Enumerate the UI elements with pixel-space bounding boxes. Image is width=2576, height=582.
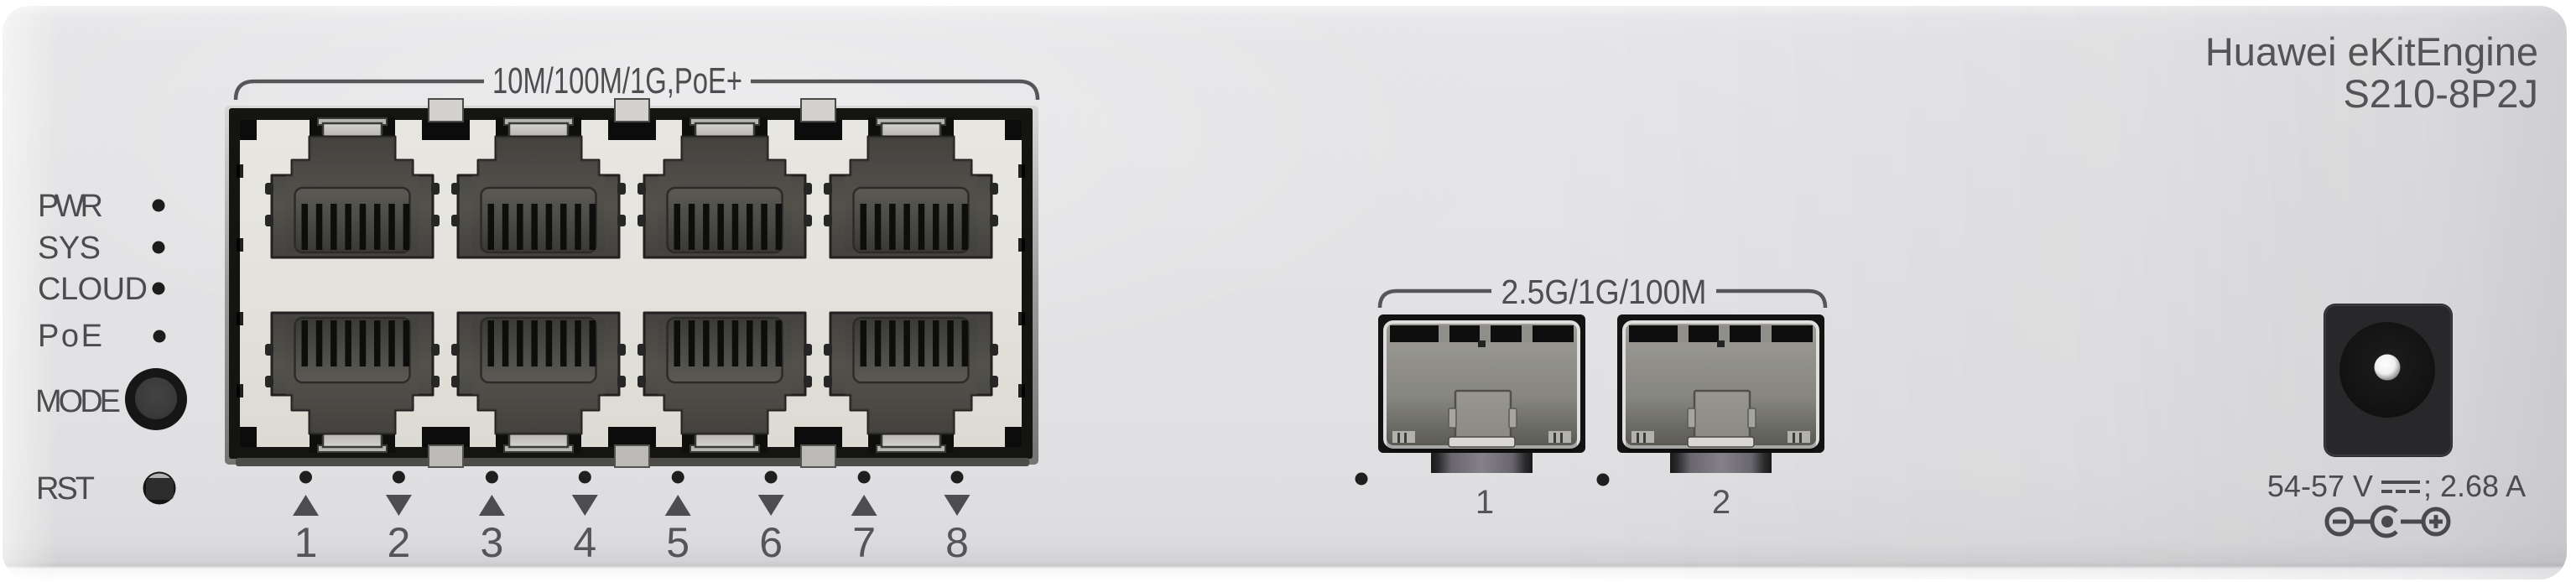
svg-text:S210-8P2J: S210-8P2J <box>2343 71 2538 116</box>
svg-text:1: 1 <box>1475 484 1494 521</box>
svg-text:3: 3 <box>480 519 503 566</box>
svg-text:RST: RST <box>36 471 95 507</box>
svg-text:10M/100M/1G,PoE+: 10M/100M/1G,PoE+ <box>492 60 742 101</box>
svg-text:CLOUD: CLOUD <box>38 272 148 307</box>
svg-text:54-57 V: 54-57 V <box>2267 469 2373 503</box>
svg-text:5: 5 <box>666 519 690 566</box>
svg-text:1: 1 <box>294 519 318 566</box>
svg-text:4: 4 <box>573 519 596 566</box>
svg-text:SYS: SYS <box>38 231 101 266</box>
svg-text:PWR: PWR <box>38 189 103 224</box>
svg-text:2: 2 <box>1712 484 1730 521</box>
svg-text:7: 7 <box>852 519 876 566</box>
svg-text:MODE: MODE <box>35 384 121 419</box>
svg-text:2: 2 <box>387 519 410 566</box>
svg-text:Huawei eKitEngine: Huawei eKitEngine <box>2205 29 2538 74</box>
svg-text:PoE: PoE <box>38 319 102 354</box>
svg-text:8: 8 <box>945 519 969 566</box>
svg-text:6: 6 <box>759 519 783 566</box>
svg-text:2.5G/1G/100M: 2.5G/1G/100M <box>1501 273 1707 311</box>
svg-text:; 2.68 A: ; 2.68 A <box>2423 469 2526 503</box>
